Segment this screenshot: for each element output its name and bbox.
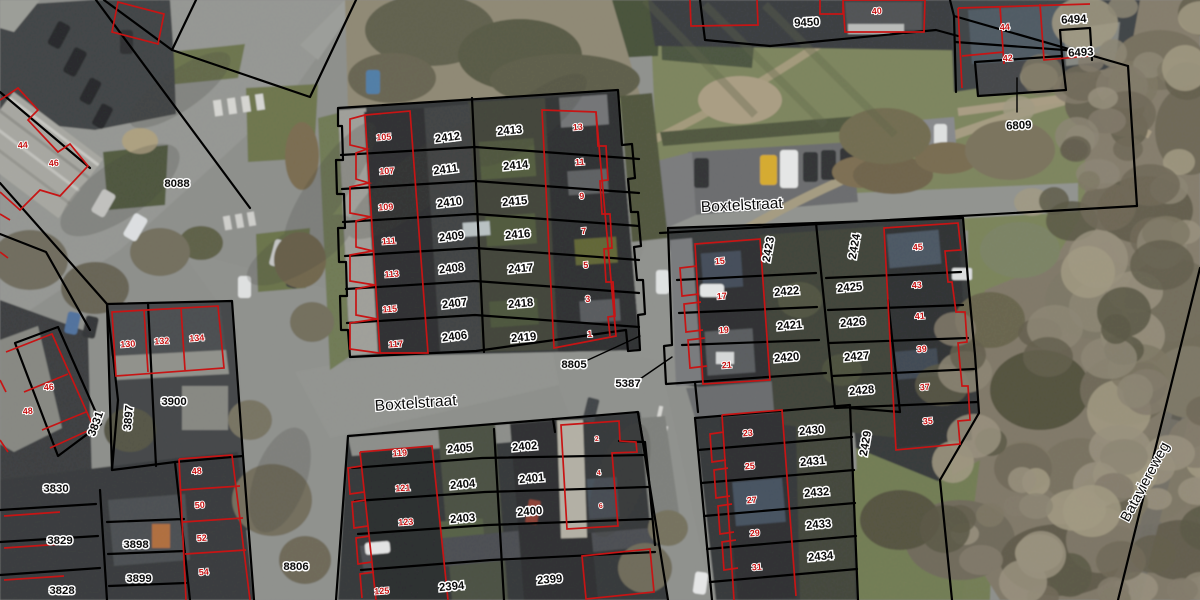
svg-text:8088: 8088	[164, 178, 189, 190]
svg-text:27: 27	[746, 495, 757, 506]
svg-text:2401: 2401	[519, 472, 546, 486]
svg-text:109: 109	[378, 201, 394, 212]
svg-text:6493: 6493	[1068, 46, 1094, 59]
svg-text:2419: 2419	[511, 331, 537, 345]
svg-text:121: 121	[395, 482, 411, 493]
svg-text:2432: 2432	[804, 486, 830, 500]
svg-text:48: 48	[191, 466, 202, 477]
svg-text:52: 52	[196, 533, 207, 544]
svg-text:134: 134	[189, 332, 205, 343]
svg-text:5387: 5387	[615, 378, 640, 390]
svg-text:3828: 3828	[49, 585, 74, 597]
svg-text:2431: 2431	[800, 455, 827, 469]
svg-text:46: 46	[43, 382, 54, 393]
svg-text:7: 7	[581, 226, 587, 236]
svg-text:2430: 2430	[799, 424, 825, 438]
svg-text:19: 19	[718, 325, 729, 336]
svg-text:13: 13	[572, 122, 583, 133]
svg-text:6: 6	[599, 503, 603, 510]
svg-text:8805: 8805	[561, 359, 587, 371]
svg-text:125: 125	[374, 585, 390, 596]
svg-text:39: 39	[916, 344, 927, 355]
svg-text:17: 17	[716, 291, 727, 302]
svg-text:31: 31	[751, 562, 762, 573]
svg-text:54: 54	[198, 567, 209, 578]
svg-text:3829: 3829	[47, 535, 72, 547]
svg-text:123: 123	[398, 516, 414, 527]
svg-text:2404: 2404	[450, 478, 477, 492]
svg-text:48: 48	[22, 406, 33, 417]
svg-text:25: 25	[744, 461, 755, 472]
svg-text:6494: 6494	[1061, 13, 1088, 26]
svg-text:11: 11	[575, 157, 585, 168]
svg-text:2414: 2414	[503, 159, 530, 173]
svg-text:2402: 2402	[512, 440, 538, 454]
svg-text:132: 132	[154, 335, 170, 346]
svg-text:2426: 2426	[840, 316, 866, 330]
svg-text:45: 45	[912, 242, 923, 253]
svg-text:111: 111	[381, 236, 396, 247]
svg-text:44: 44	[999, 22, 1010, 33]
svg-text:2416: 2416	[505, 228, 531, 242]
svg-text:42: 42	[1002, 53, 1013, 64]
svg-text:113: 113	[384, 269, 399, 280]
svg-text:15: 15	[714, 256, 725, 267]
svg-text:9: 9	[579, 191, 585, 201]
svg-text:2399: 2399	[537, 573, 563, 587]
svg-text:2418: 2418	[508, 297, 534, 311]
svg-text:43: 43	[911, 280, 922, 291]
svg-text:1: 1	[587, 329, 593, 339]
svg-text:117: 117	[388, 339, 403, 350]
svg-text:2433: 2433	[806, 518, 832, 532]
svg-text:41: 41	[914, 311, 925, 322]
svg-text:2434: 2434	[808, 550, 835, 564]
svg-text:2415: 2415	[502, 195, 529, 209]
svg-text:3: 3	[585, 294, 591, 304]
svg-text:2413: 2413	[497, 124, 523, 138]
svg-text:8806: 8806	[283, 561, 308, 573]
svg-text:2: 2	[595, 436, 599, 443]
svg-text:9450: 9450	[794, 16, 820, 29]
svg-text:2425: 2425	[837, 281, 864, 295]
svg-text:37: 37	[919, 382, 930, 393]
svg-text:44: 44	[17, 140, 28, 151]
svg-text:3830: 3830	[43, 483, 68, 495]
svg-text:23: 23	[742, 428, 753, 439]
svg-text:3898: 3898	[123, 539, 148, 551]
svg-text:130: 130	[120, 338, 136, 349]
svg-text:105: 105	[376, 131, 392, 142]
svg-text:2427: 2427	[844, 350, 870, 364]
svg-text:6809: 6809	[1006, 119, 1032, 132]
svg-text:115: 115	[382, 304, 397, 315]
svg-text:2428: 2428	[849, 384, 875, 398]
svg-text:29: 29	[749, 528, 760, 539]
svg-text:46: 46	[48, 158, 59, 169]
svg-text:5: 5	[583, 260, 589, 270]
svg-text:107: 107	[379, 165, 395, 176]
svg-text:2405: 2405	[447, 442, 474, 456]
svg-text:2394: 2394	[439, 580, 466, 594]
svg-text:2400: 2400	[517, 505, 543, 519]
svg-text:21: 21	[721, 360, 732, 371]
svg-text:3897: 3897	[122, 405, 136, 431]
svg-text:2417: 2417	[508, 262, 534, 276]
svg-text:3900: 3900	[161, 396, 186, 408]
svg-text:2420: 2420	[774, 351, 800, 365]
svg-text:50: 50	[194, 500, 205, 511]
svg-text:35: 35	[922, 416, 933, 427]
svg-text:40: 40	[871, 6, 882, 17]
svg-text:4: 4	[597, 470, 601, 477]
svg-text:2421: 2421	[777, 319, 804, 333]
svg-text:2422: 2422	[774, 285, 800, 299]
svg-text:119: 119	[392, 448, 407, 459]
svg-text:2403: 2403	[450, 512, 476, 526]
svg-text:3899: 3899	[126, 573, 151, 585]
